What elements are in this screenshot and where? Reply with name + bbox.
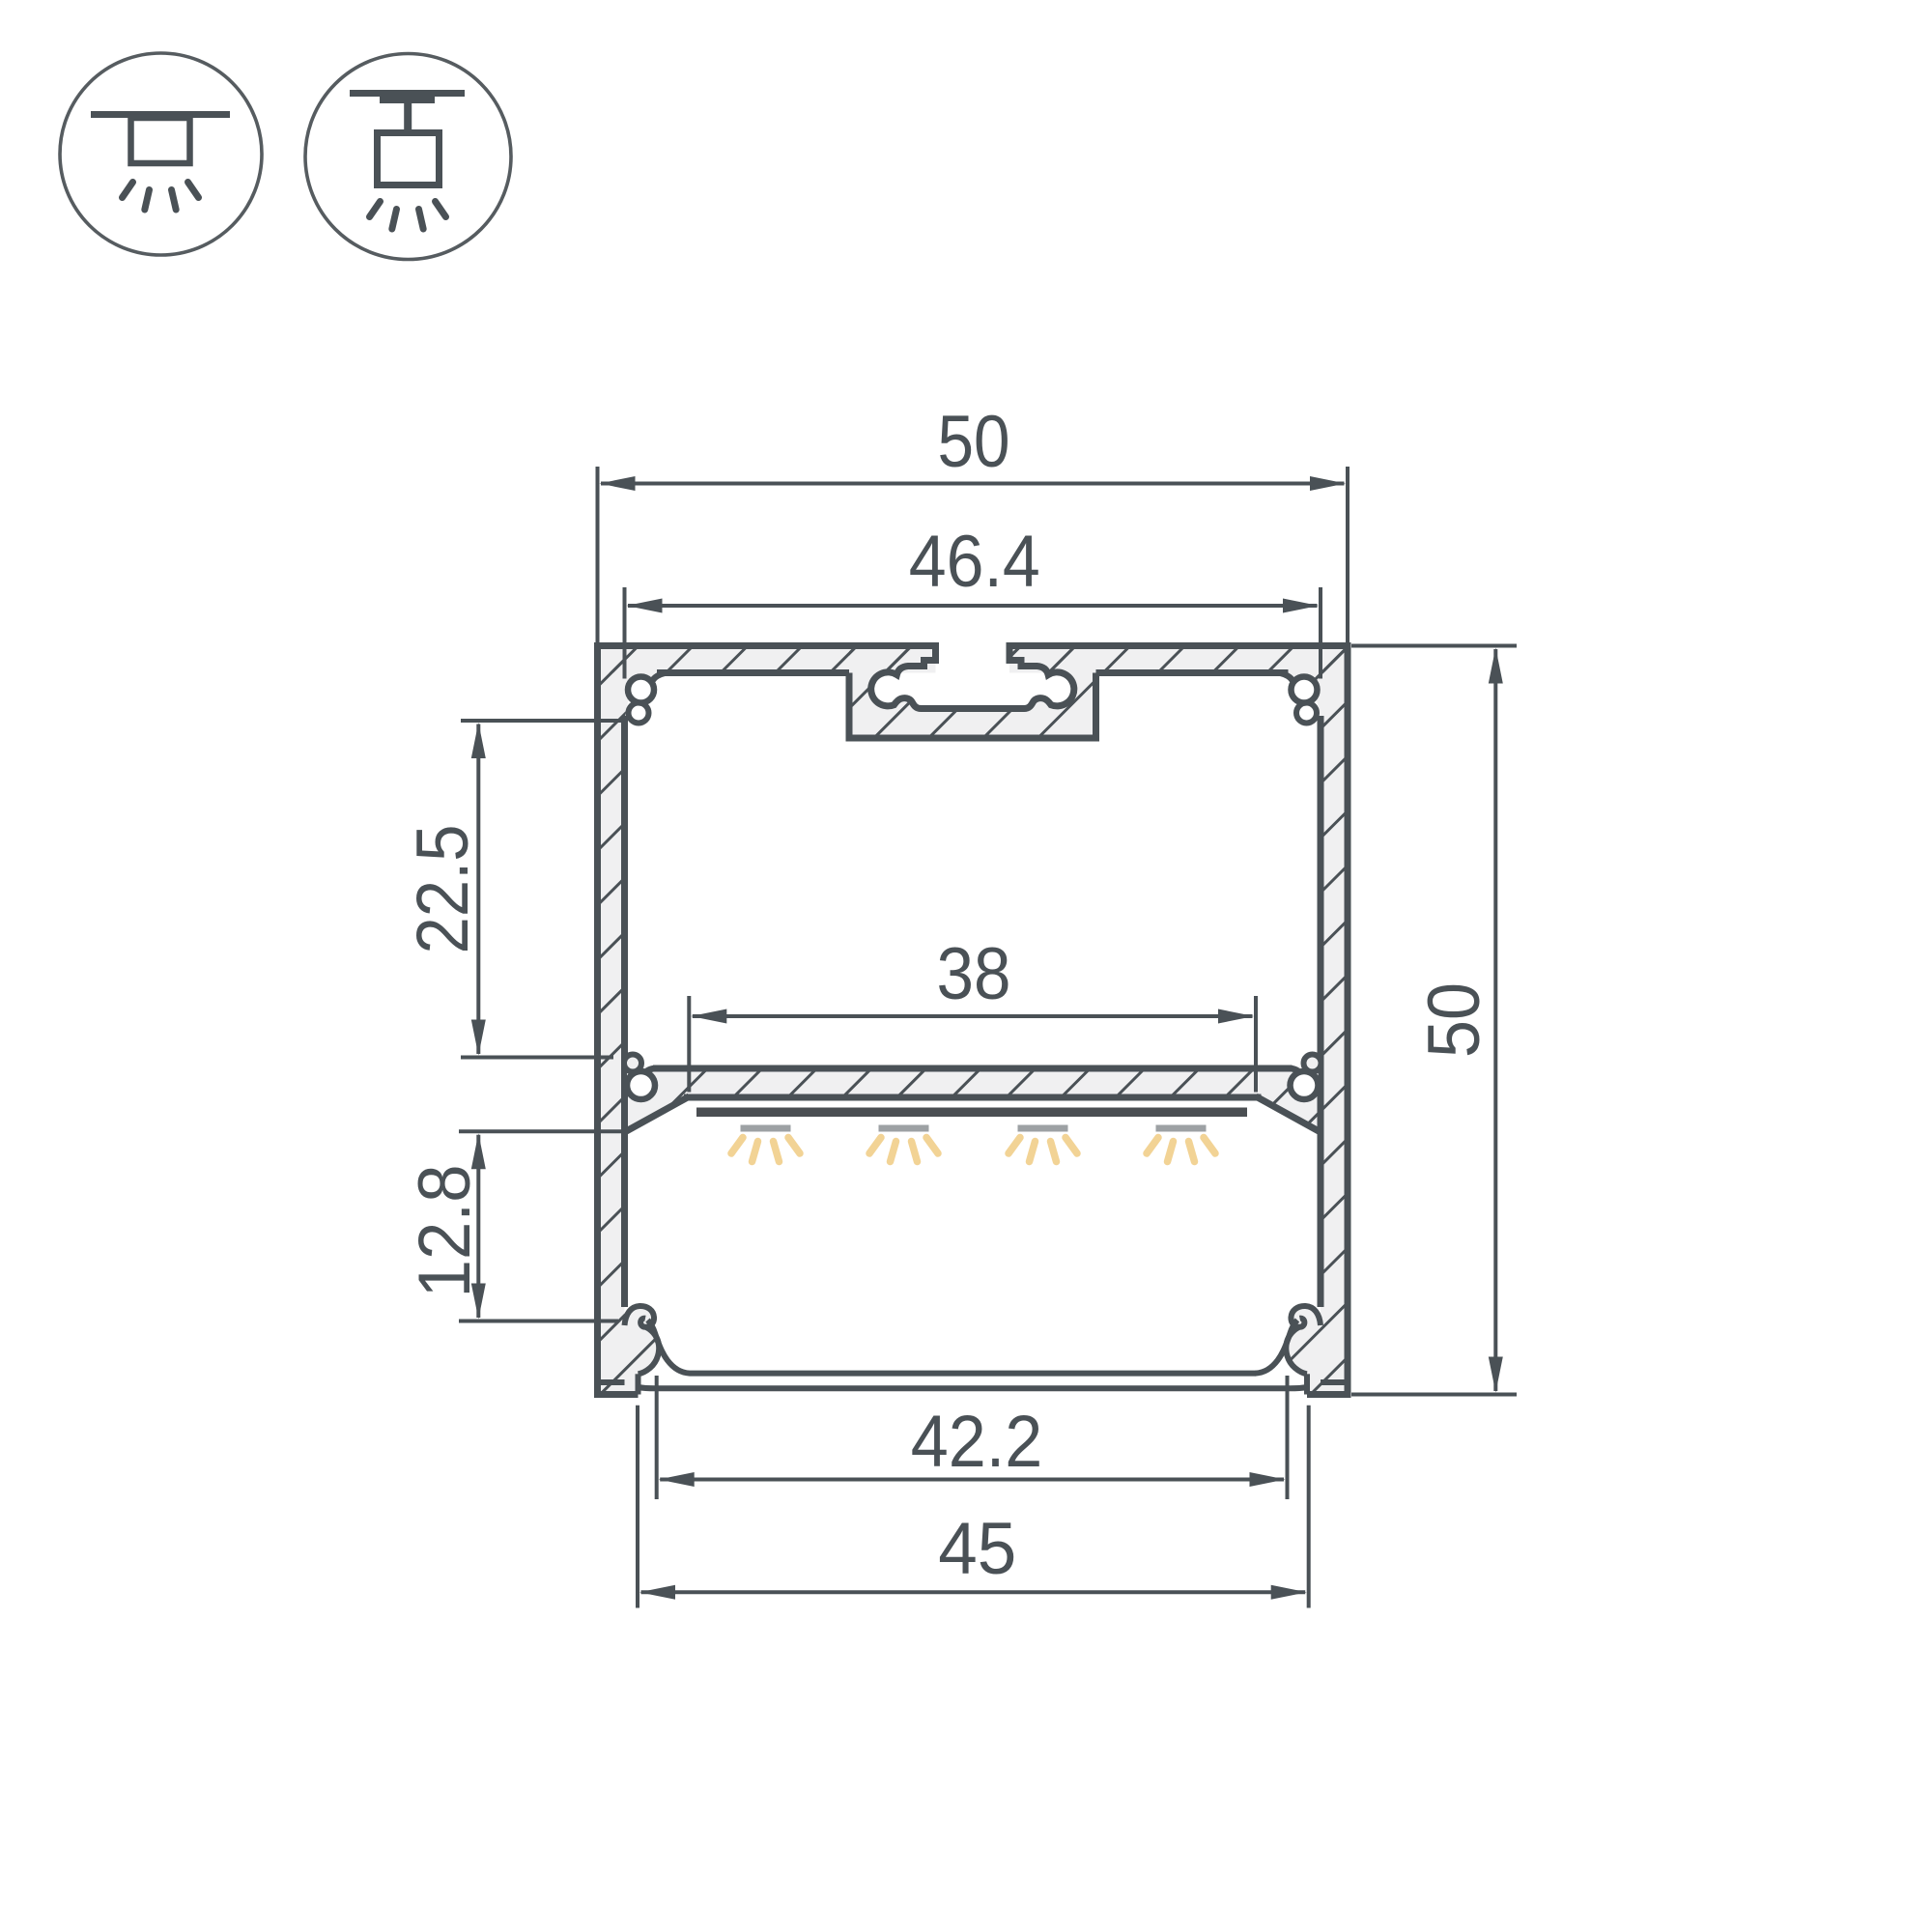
svg-text:38: 38 xyxy=(937,933,1011,1015)
svg-text:12.8: 12.8 xyxy=(404,1165,486,1298)
svg-text:42.2: 42.2 xyxy=(911,1401,1043,1483)
svg-text:50: 50 xyxy=(938,401,1010,483)
svg-text:46.4: 46.4 xyxy=(909,521,1040,603)
svg-text:22.5: 22.5 xyxy=(402,825,484,954)
svg-text:50: 50 xyxy=(1413,982,1495,1058)
svg-text:45: 45 xyxy=(938,1508,1016,1590)
